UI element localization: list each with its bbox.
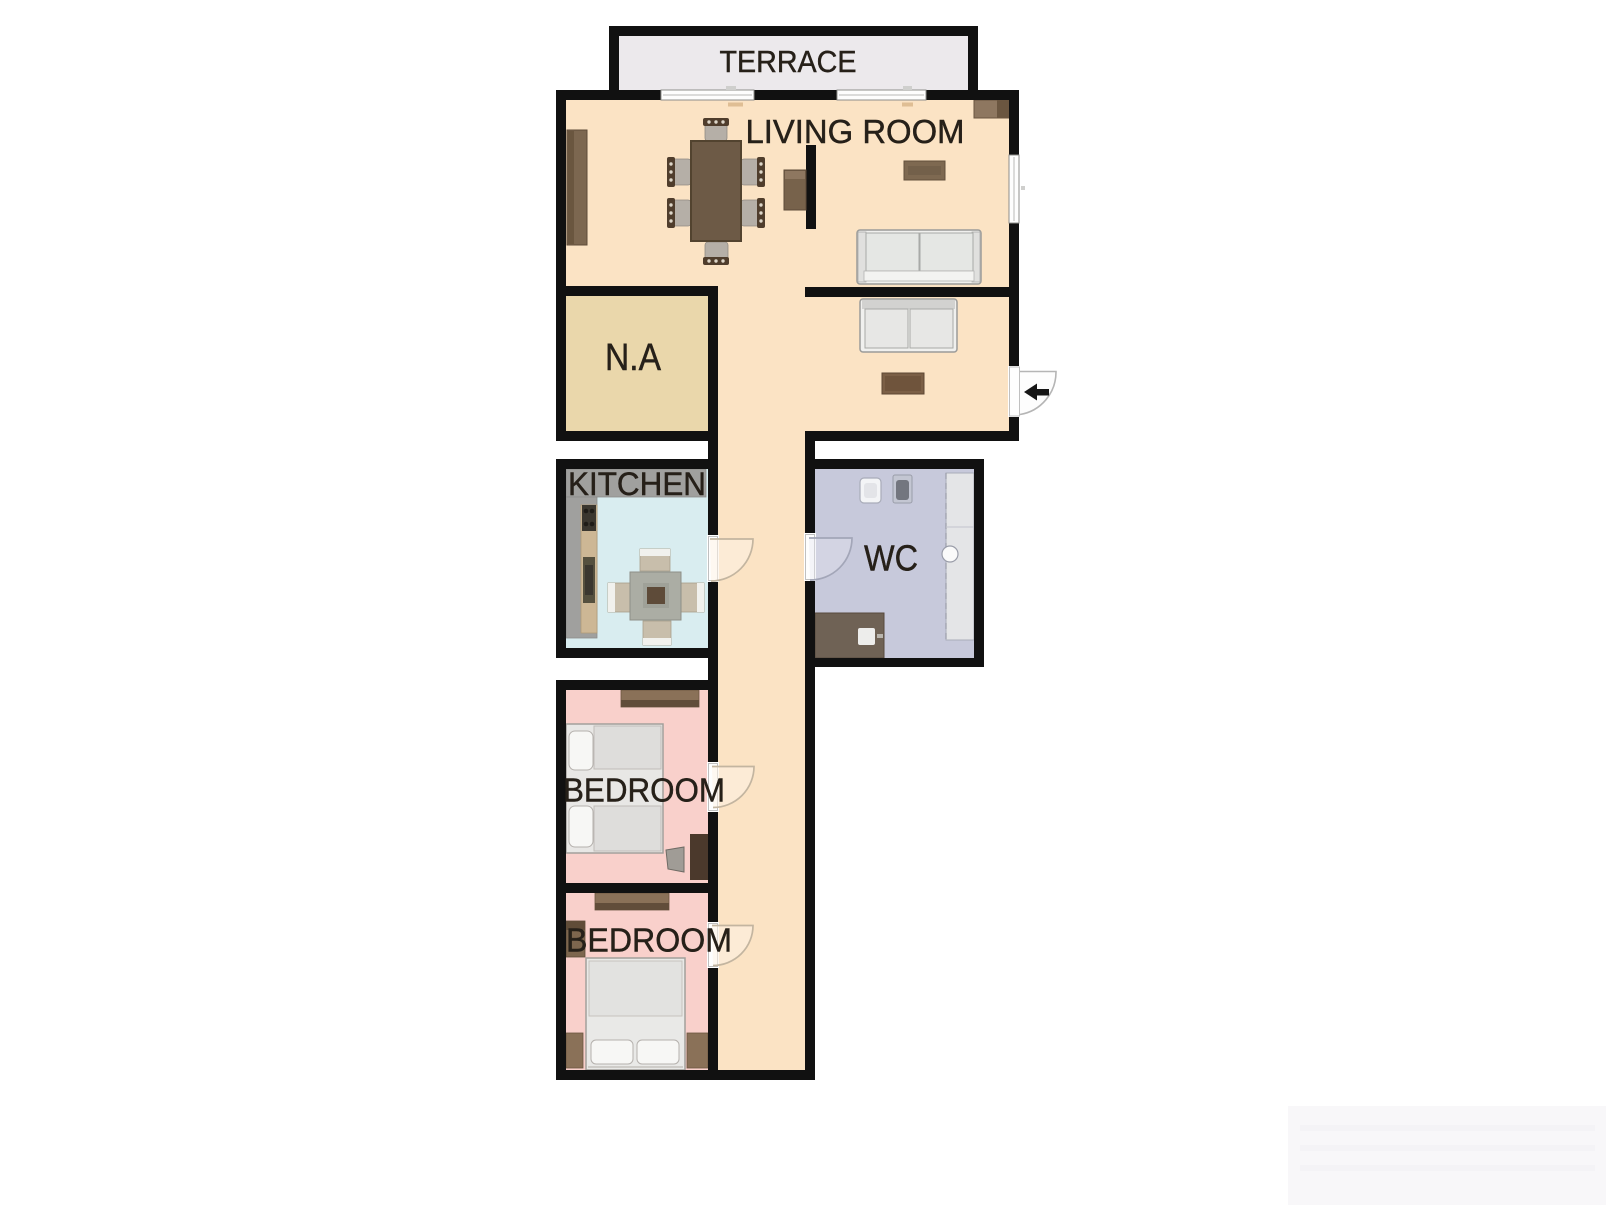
svg-text:LIVING ROOM: LIVING ROOM [746,113,965,150]
svg-text:N.A: N.A [605,337,662,379]
svg-text:BEDROOM: BEDROOM [566,922,732,959]
svg-text:TERRACE: TERRACE [720,44,857,79]
svg-text:BEDROOM: BEDROOM [563,772,725,809]
svg-text:KITCHEN: KITCHEN [568,466,706,502]
svg-text:WC: WC [864,538,918,579]
